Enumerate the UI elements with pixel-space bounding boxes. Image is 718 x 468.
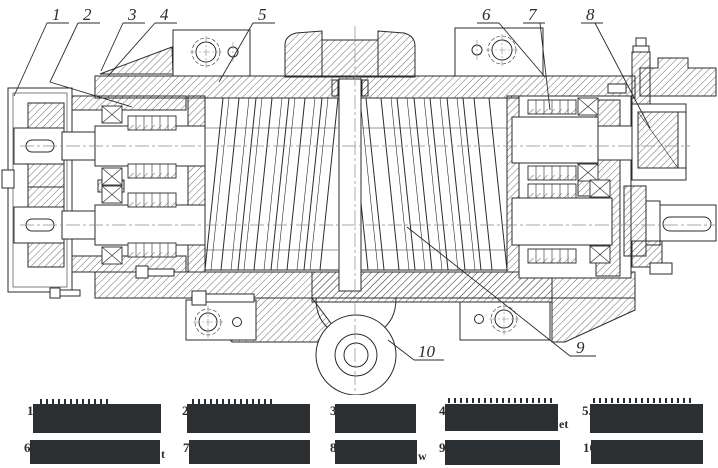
seal-pack: [128, 193, 176, 207]
bolt-head: [633, 46, 649, 52]
bolt: [50, 288, 60, 298]
seal-pack: [528, 100, 576, 114]
nut: [192, 291, 206, 305]
end-flange-upper: [632, 52, 650, 104]
seal-pack: [128, 164, 176, 178]
text-ascender-fragments: [593, 398, 693, 403]
rotor-center-divider: [339, 79, 361, 291]
callout-5-label: 5: [258, 5, 267, 24]
upper-end-cover: [678, 112, 686, 168]
gearbox-cover-tab: [2, 170, 14, 188]
seal-pack: [528, 166, 576, 180]
legend-item-9-redaction: [445, 440, 560, 465]
legend-item-10-redaction: [591, 440, 703, 464]
bottom-right-pad: [460, 302, 550, 340]
output-shaft-collar: [646, 201, 660, 245]
callout-4-label: 4: [160, 5, 169, 24]
discharge-port-right-rim: [378, 31, 415, 77]
callout-6-label: 6: [482, 5, 491, 24]
boss-outer-circle: [316, 315, 396, 395]
legend-item-8-redaction: [335, 440, 417, 464]
roller-bearing: [578, 164, 598, 181]
legend-item-4-fragment: et: [559, 417, 568, 432]
legend-item-4-redaction: [445, 404, 558, 431]
bolt-shank: [148, 269, 174, 276]
seal-pack: [528, 249, 576, 263]
callout-1-label: 1: [52, 5, 61, 24]
callout-10: 10: [388, 340, 444, 361]
roller-bearing: [578, 98, 598, 115]
seal-pack: [128, 243, 176, 257]
left-chamber-wall: [188, 96, 205, 272]
bolt-shank: [206, 294, 254, 302]
top-right-step-flange: [640, 58, 716, 96]
roller-bearing: [102, 186, 122, 203]
top-right-pad: [455, 28, 543, 76]
bottom-structures: [186, 298, 635, 395]
roller-bearing: [102, 168, 122, 185]
upper-shaft-right-journal: [512, 117, 598, 163]
bottom-boss: [316, 298, 396, 395]
legend-item-6-redaction: [30, 440, 160, 464]
lower-shaft-right-journal: [512, 198, 612, 245]
bolt: [636, 38, 646, 46]
discharge-port-left-rim: [285, 31, 322, 77]
legend-item-2-redaction: [187, 404, 310, 433]
discharge-port-middle: [322, 40, 378, 77]
callout-3-label: 3: [127, 5, 137, 24]
screenshot-root: 1 2 3 4 5 6 7: [0, 0, 718, 468]
callout-1: 1: [14, 5, 69, 96]
top-left-pad: [173, 30, 250, 76]
roller-bearing: [102, 247, 122, 264]
sectional-drawing: 1 2 3 4 5 6 7: [0, 0, 718, 395]
legend-item-3-redaction: [335, 404, 416, 433]
seal-pack: [128, 116, 176, 130]
seal-pack: [528, 184, 576, 198]
text-ascender-fragments: [448, 398, 556, 403]
legend-item-1-redaction: [33, 404, 161, 433]
inlet-cover-slant: [100, 47, 173, 74]
bolt-shank: [60, 290, 80, 296]
callout-9-label: 9: [576, 338, 585, 357]
callout-10-label: 10: [418, 342, 436, 361]
legend-item-6-fragment: t: [161, 447, 165, 462]
right-foot-bracket: [552, 298, 635, 342]
callout-7-label: 7: [528, 5, 538, 24]
bolt: [650, 263, 672, 274]
left-gearbox: [2, 88, 72, 292]
legend-item-5-redaction: [590, 404, 703, 433]
screw-rotors: [205, 79, 507, 291]
legend-item-8-fragment: w: [418, 449, 427, 464]
callout-8-label: 8: [586, 5, 595, 24]
roller-bearing: [590, 180, 610, 197]
output-shaft: [660, 205, 716, 241]
bolt: [136, 266, 148, 278]
roller-bearing: [590, 246, 610, 263]
roller-bearing: [102, 106, 122, 123]
left-housing-top: [72, 96, 186, 110]
bolt-head: [608, 84, 626, 93]
callout-2-label: 2: [83, 5, 92, 24]
legend-item-7-redaction: [189, 440, 310, 464]
